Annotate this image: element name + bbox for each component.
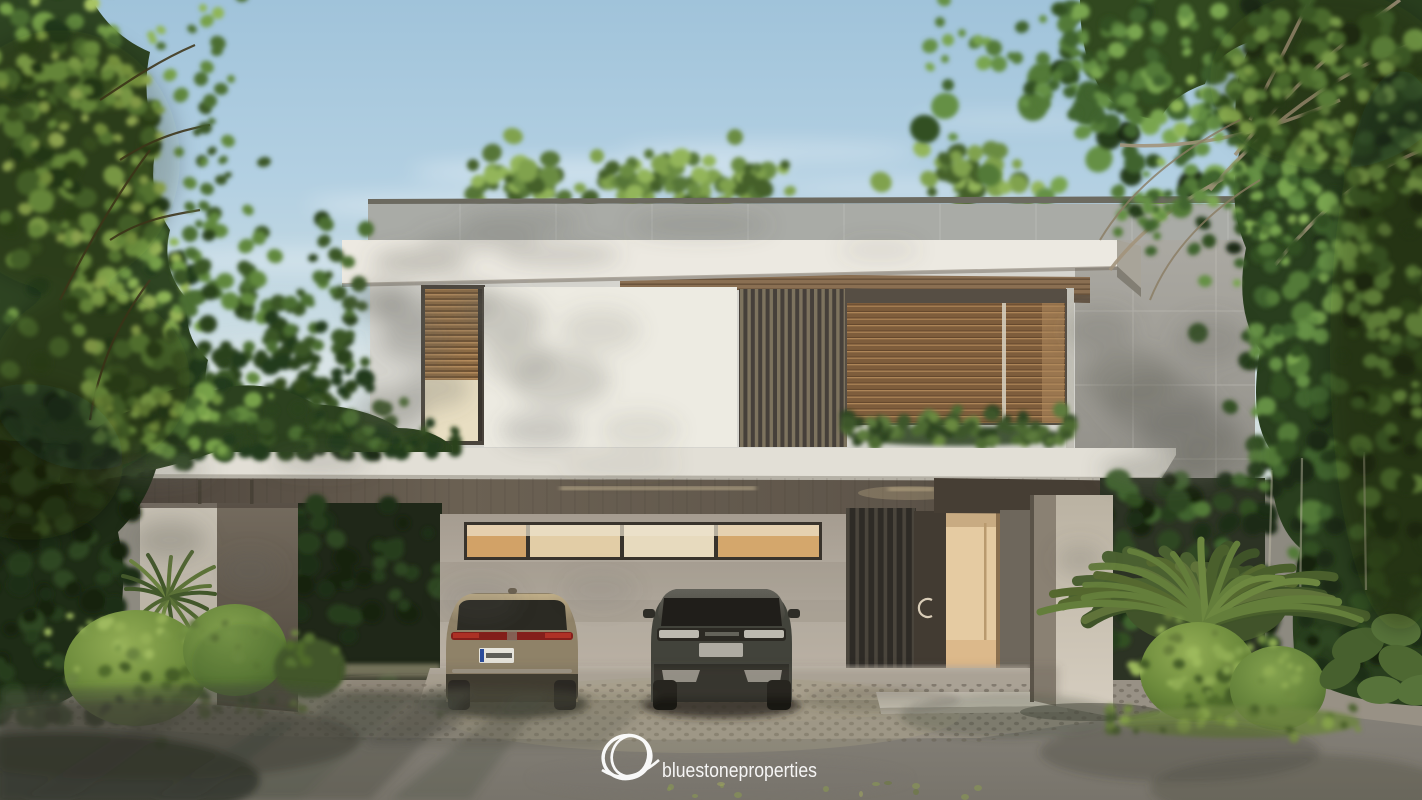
svg-text:bluestoneproperties: bluestoneproperties [662,760,817,782]
